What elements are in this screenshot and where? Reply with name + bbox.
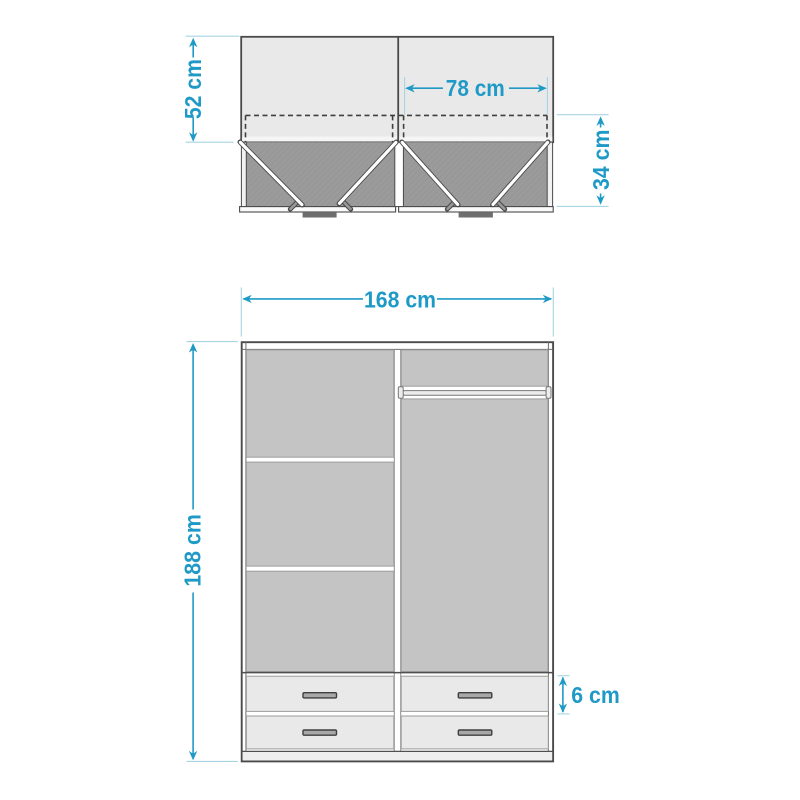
svg-text:78 cm: 78 cm [446, 75, 505, 101]
svg-text:168 cm: 168 cm [364, 286, 436, 312]
svg-text:6 cm: 6 cm [571, 682, 620, 708]
svg-text:34 cm: 34 cm [588, 130, 614, 191]
svg-text:188 cm: 188 cm [179, 514, 205, 587]
svg-text:52 cm: 52 cm [180, 59, 206, 119]
